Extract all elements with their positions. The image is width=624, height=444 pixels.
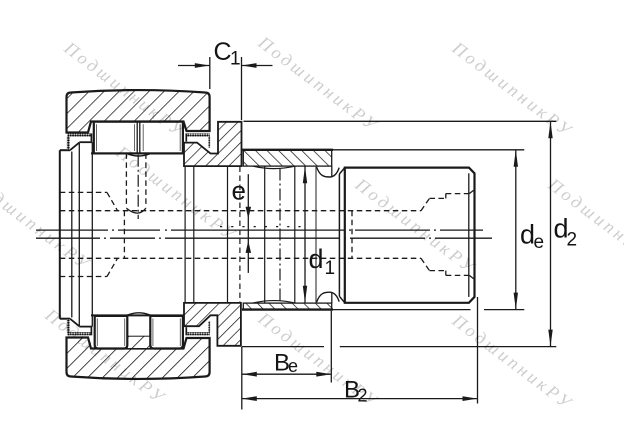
svg-text:d: d xyxy=(309,244,324,274)
svg-text:1: 1 xyxy=(325,258,336,279)
svg-text:e: e xyxy=(232,176,246,206)
svg-text:e: e xyxy=(534,232,545,253)
svg-text:C: C xyxy=(214,38,232,66)
svg-text:1: 1 xyxy=(230,49,241,70)
svg-text:2: 2 xyxy=(567,230,578,251)
svg-text:e: e xyxy=(288,356,298,376)
